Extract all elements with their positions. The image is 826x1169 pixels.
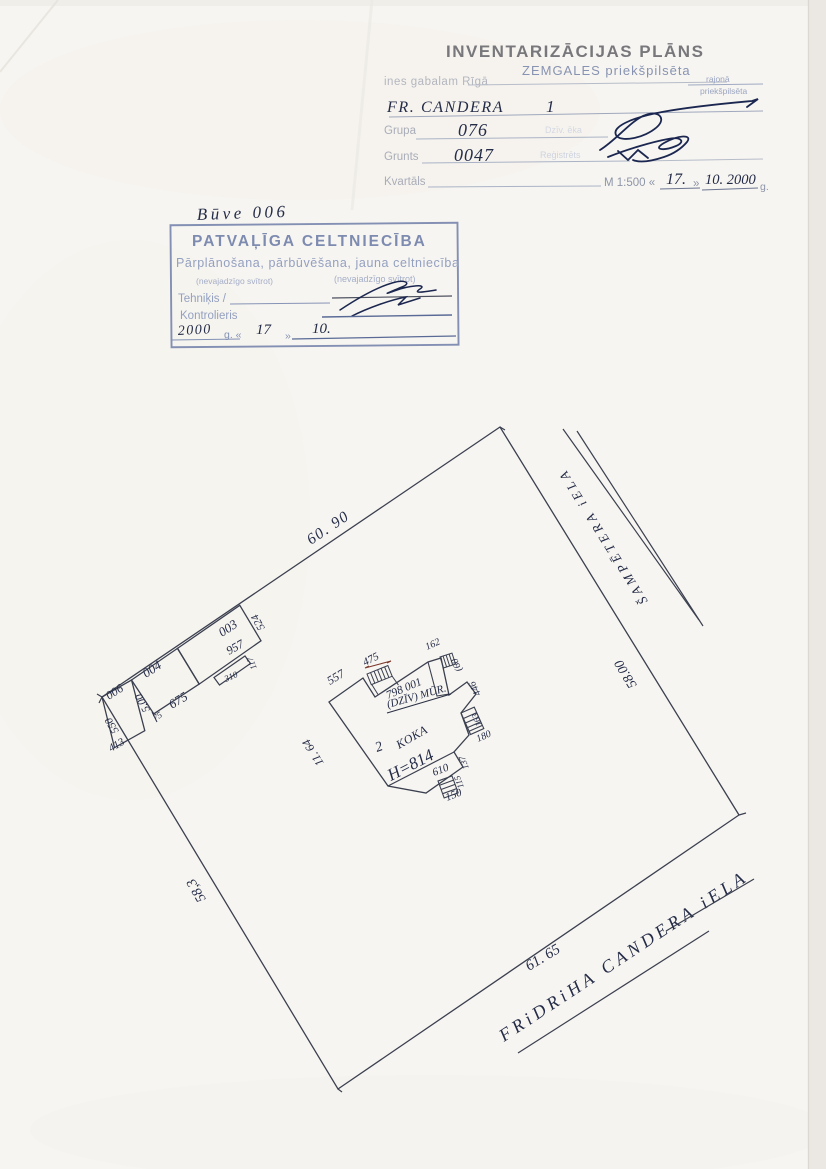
svg-text:076: 076 [458, 120, 488, 140]
svg-text:FR. CANDERA: FR. CANDERA [386, 99, 504, 116]
svg-text:»: » [285, 330, 291, 342]
svg-text:ZEMGALES priekšpilsēta: ZEMGALES priekšpilsēta [522, 63, 691, 78]
svg-text:M 1:500 «: M 1:500 « [604, 177, 655, 189]
svg-text:rajonā: rajonā [706, 74, 730, 84]
svg-text:Kontrolieris: Kontrolieris [180, 310, 238, 322]
svg-text:10. 2000: 10. 2000 [705, 172, 757, 188]
svg-text:1: 1 [546, 97, 555, 116]
svg-text:Grunts: Grunts [384, 151, 419, 163]
svg-text:Reģistrēts: Reģistrēts [540, 150, 581, 160]
svg-text:g.: g. [760, 181, 769, 193]
svg-text:INVENTARIZĀCIJAS PLĀNS: INVENTARIZĀCIJAS PLĀNS [446, 42, 704, 61]
svg-text:(nevajadzīgo svītrot): (nevajadzīgo svītrot) [334, 274, 416, 284]
svg-text:PATVAĻĪGA CELTNIECĪBA: PATVAĻĪGA CELTNIECĪBA [192, 233, 427, 250]
svg-text:Kvartāls: Kvartāls [384, 176, 426, 188]
svg-text:Pārplānošana, pārbūvēšana, jau: Pārplānošana, pārbūvēšana, jauna celtnie… [176, 256, 460, 270]
svg-text:Tehniķis /: Tehniķis / [178, 293, 227, 305]
svg-text:17.: 17. [666, 171, 686, 188]
svg-text:17: 17 [256, 322, 273, 338]
svg-text:​ines gabalam Rīgā: ​ines gabalam Rīgā [384, 76, 488, 88]
svg-text:2000: 2000 [177, 322, 212, 339]
svg-text:10.: 10. [312, 321, 331, 337]
svg-text:Būve 006: Būve 006 [196, 202, 288, 224]
svg-text:Grupa: Grupa [384, 125, 417, 137]
svg-text:priekšpilsēta: priekšpilsēta [700, 86, 748, 96]
svg-text:(nevajadzīgo svītrot): (nevajadzīgo svītrot) [196, 276, 273, 286]
svg-text:Dzīv. ēka: Dzīv. ēka [545, 125, 582, 135]
